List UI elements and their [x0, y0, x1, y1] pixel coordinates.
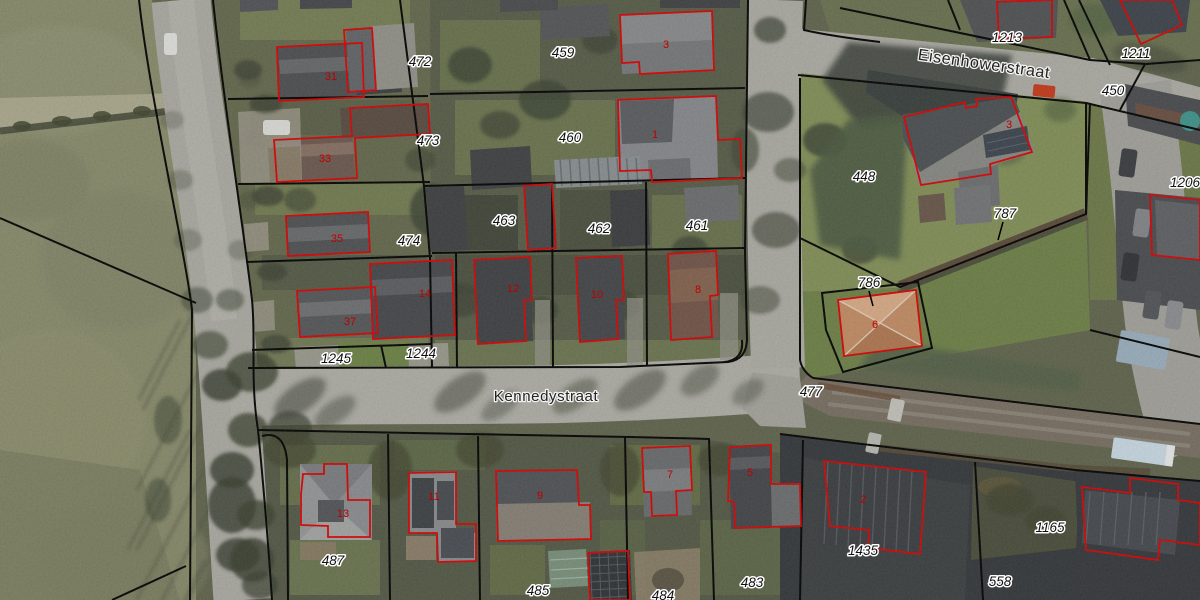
svg-text:6: 6 [872, 319, 878, 331]
svg-text:1435: 1435 [848, 543, 879, 558]
svg-text:8: 8 [695, 284, 701, 296]
svg-text:1206: 1206 [1170, 175, 1200, 190]
svg-text:448: 448 [853, 169, 876, 184]
svg-text:1: 1 [652, 129, 658, 141]
svg-text:787: 787 [994, 206, 1017, 221]
svg-text:7: 7 [667, 469, 673, 481]
svg-text:473: 473 [417, 133, 440, 148]
svg-text:13: 13 [337, 508, 349, 520]
svg-text:477: 477 [800, 384, 823, 399]
svg-text:461: 461 [686, 218, 709, 233]
svg-text:485: 485 [527, 583, 550, 598]
svg-text:12: 12 [507, 283, 519, 295]
svg-text:35: 35 [331, 233, 343, 245]
svg-text:14: 14 [419, 288, 431, 300]
svg-text:483: 483 [741, 575, 764, 590]
svg-text:487: 487 [322, 553, 345, 568]
svg-text:463: 463 [493, 213, 516, 228]
svg-text:484: 484 [652, 588, 675, 600]
svg-text:31: 31 [325, 71, 337, 83]
svg-text:474: 474 [398, 233, 421, 248]
svg-text:3: 3 [1006, 119, 1012, 131]
svg-text:472: 472 [409, 54, 432, 69]
svg-text:11: 11 [428, 491, 439, 503]
svg-text:10: 10 [591, 289, 603, 301]
svg-text:1165: 1165 [1035, 520, 1065, 535]
svg-text:450: 450 [1102, 83, 1125, 98]
svg-text:558: 558 [989, 574, 1012, 589]
svg-text:5: 5 [747, 467, 753, 479]
svg-text:1244: 1244 [406, 346, 436, 361]
svg-text:33: 33 [319, 153, 331, 165]
svg-text:1213: 1213 [992, 30, 1023, 45]
svg-text:3: 3 [663, 39, 669, 51]
svg-text:462: 462 [588, 221, 611, 236]
svg-text:Kennedystraat: Kennedystraat [494, 388, 599, 405]
svg-text:2: 2 [860, 494, 866, 506]
svg-text:459: 459 [552, 45, 575, 60]
svg-text:1211: 1211 [1121, 46, 1150, 61]
svg-text:37: 37 [344, 316, 356, 328]
svg-text:786: 786 [858, 275, 881, 290]
svg-text:9: 9 [537, 490, 543, 502]
svg-text:460: 460 [559, 130, 582, 145]
svg-text:1245: 1245 [321, 351, 352, 366]
